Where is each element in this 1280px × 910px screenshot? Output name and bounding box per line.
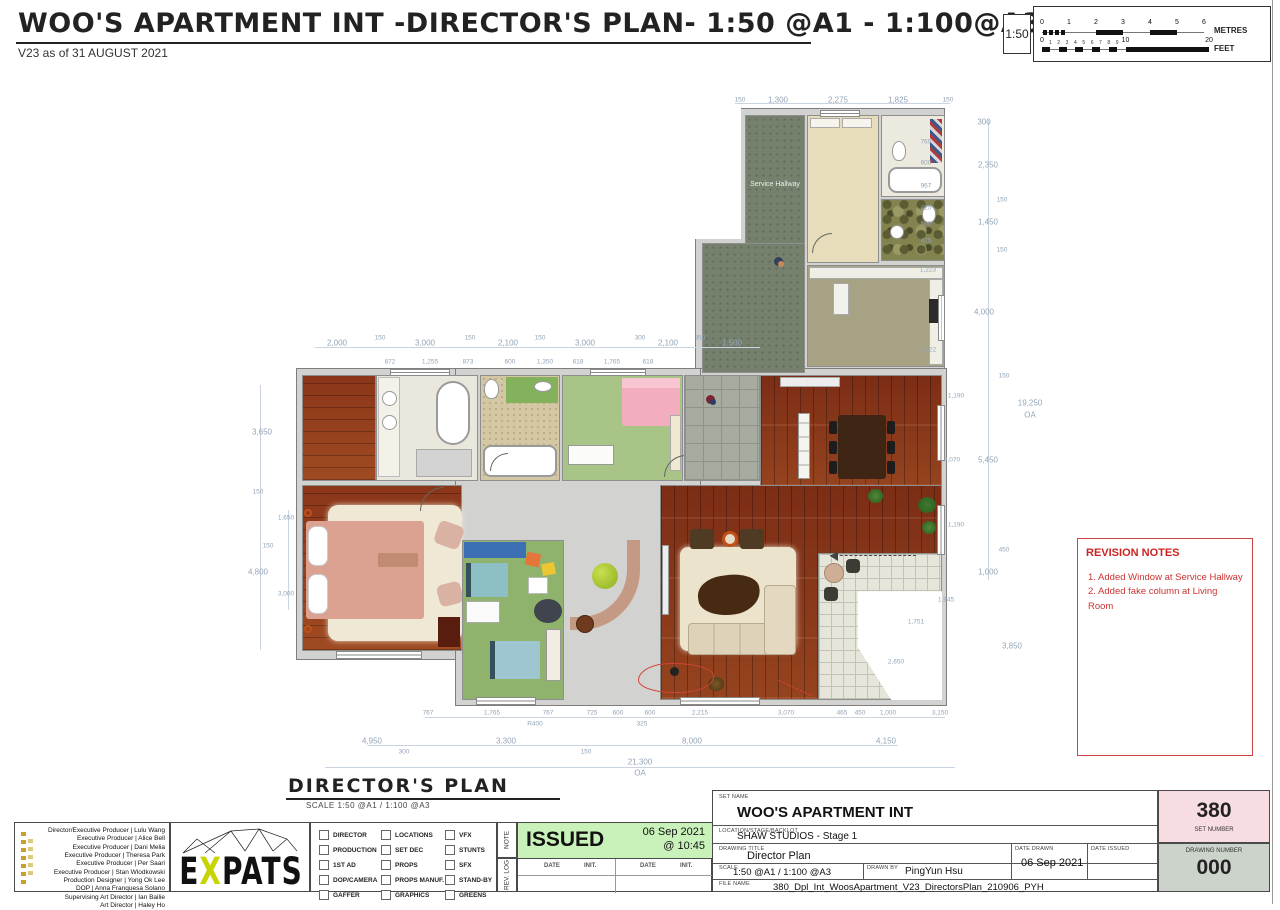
dim-label: 618 xyxy=(643,359,654,366)
department-item: LOCATIONS xyxy=(381,830,444,840)
department-checkbox xyxy=(445,890,455,900)
file-name-label: FILE NAME xyxy=(719,881,750,887)
dim-label: 1,000 xyxy=(978,568,998,577)
department-label: GREENS xyxy=(459,892,486,899)
department-label: GAFFER xyxy=(333,892,360,899)
drawing-number-value: 000 xyxy=(1159,856,1269,880)
dim-label: 425 xyxy=(921,238,932,245)
credit-line: Production Designer | Yong Ok Lee xyxy=(39,877,165,885)
dim-label: 1,945 xyxy=(938,597,954,604)
department-checkbox xyxy=(381,830,391,840)
dim-label: 150 xyxy=(253,489,264,496)
dim-label: 4,000 xyxy=(974,308,994,317)
set-number-label: SET NUMBER xyxy=(1159,827,1269,833)
department-item: PRODUCTION xyxy=(319,845,377,855)
department-label: PROPS xyxy=(395,862,418,869)
dim-label: 4,800 xyxy=(248,568,268,577)
credit-line: Executive Producer | Stan Wlodkowski xyxy=(39,869,165,877)
dim-label: 150 xyxy=(943,97,954,104)
dim-label: 450 xyxy=(855,710,866,717)
dim-label: 150 xyxy=(581,749,592,756)
dim-label: 873 xyxy=(463,359,474,366)
plan-caption-title: DIRECTOR'S PLAN xyxy=(288,775,509,797)
metre-tick: 0 xyxy=(1040,19,1044,26)
dim-label: 3,000 xyxy=(278,591,294,598)
revision-notes-title: REVISION NOTES xyxy=(1086,547,1252,559)
tb-divider xyxy=(1087,843,1088,879)
department-label: SET DEC xyxy=(395,847,423,854)
logo-letter: S xyxy=(282,849,303,894)
dim-label: 2,350 xyxy=(978,161,998,170)
departments-box: DIRECTORPRODUCTION1ST ADDOP/CAMERAGAFFER… xyxy=(310,822,497,892)
dim-label: 600 xyxy=(645,710,656,717)
log-init-header: INIT. xyxy=(680,863,692,869)
dim-label: 19,250 xyxy=(1018,399,1042,408)
issued-date: 06 Sep 2021 xyxy=(643,826,705,840)
feet-bar xyxy=(1059,47,1067,52)
logo-letter: T xyxy=(261,849,281,894)
scale-ratio-box: 1:50 xyxy=(1003,14,1031,54)
dim-label: 767 xyxy=(423,710,434,717)
department-checkbox xyxy=(319,830,329,840)
credits-box: Director/Executive Producer | Lulu WangE… xyxy=(14,822,170,892)
feet-bar-long xyxy=(1126,47,1209,52)
feet-minor-tick: 9 xyxy=(1116,40,1119,46)
dim-label: 1,300 xyxy=(768,96,788,105)
feet-tick: 0 xyxy=(1040,37,1044,44)
department-checkbox xyxy=(381,845,391,855)
metre-tick: 1 xyxy=(1067,19,1071,26)
dim-label: 3,000 xyxy=(575,339,595,348)
drawing-number-box: DRAWING NUMBER 000 xyxy=(1158,843,1270,892)
dim-label: 150 xyxy=(465,335,476,342)
credit-line: Executive Producer | Dani Melia xyxy=(39,844,165,852)
department-item: GRAPHICS xyxy=(381,890,444,900)
metre-bar xyxy=(1096,30,1123,35)
note-side-label: NOTE xyxy=(498,823,516,857)
title-block: SET NAME WOO'S APARTMENT INT LOCATION/ST… xyxy=(712,790,1158,892)
dim-label: 1,000 xyxy=(880,710,896,717)
dim-label: 600 xyxy=(613,710,624,717)
plan-caption-scale: SCALE 1:50 @A1 / 1:100 @A3 xyxy=(306,801,430,810)
sheet-title: WOO'S APARTMENT INT -DIRECTOR'S PLAN- 1:… xyxy=(18,8,1042,39)
dim-label: 2,100 xyxy=(658,339,678,348)
department-label: LOCATIONS xyxy=(395,832,433,839)
credit-line: Supervising Art Director | Ian Bailie xyxy=(39,894,165,902)
issued-datetime: 06 Sep 2021 @ 10:45 xyxy=(643,826,705,854)
department-label: GRAPHICS xyxy=(395,892,429,899)
department-label: DIRECTOR xyxy=(333,832,367,839)
feet-minor-tick: 7 xyxy=(1099,40,1102,46)
dim-label: 150 xyxy=(997,197,1008,204)
dim-label: 300 xyxy=(635,335,646,342)
credit-line: Executive Producer | Per Saari xyxy=(39,860,165,868)
dim-label: 150 xyxy=(263,543,274,550)
dim-label: 2,000 xyxy=(327,339,347,348)
revision-notes-list: 1. Added Window at Service Hallway2. Add… xyxy=(1088,571,1244,614)
set-number-value: 380 xyxy=(1159,799,1269,823)
feet-bar xyxy=(1109,47,1117,52)
department-checkbox xyxy=(445,860,455,870)
department-label: PROPS MANUF. xyxy=(395,877,444,884)
metre-tick: 5 xyxy=(1175,19,1179,26)
department-checkbox xyxy=(381,860,391,870)
department-label: VFX xyxy=(459,832,472,839)
department-checkbox xyxy=(445,845,455,855)
metre-tick: 2 xyxy=(1094,19,1098,26)
dimension-labels: 1501,3002,2751,8251502,0001503,0001502,1… xyxy=(240,85,1070,780)
issued-status: ISSUED xyxy=(526,828,604,852)
dim-label: 600 xyxy=(505,359,516,366)
set-name-label: SET NAME xyxy=(719,794,749,800)
dim-label: R400 xyxy=(527,721,543,728)
feet-minor-tick: 1 xyxy=(1049,40,1052,46)
department-item: 1ST AD xyxy=(319,860,377,870)
department-item: PROPS MANUF. xyxy=(381,875,444,885)
dim-label: 1,650 xyxy=(278,515,294,522)
dim-label: 3,070 xyxy=(944,457,960,464)
department-item: STUNTS xyxy=(445,845,492,855)
date-issued-label: DATE ISSUED xyxy=(1091,846,1129,852)
department-label: PRODUCTION xyxy=(333,847,377,854)
title-underline xyxy=(16,42,811,44)
dim-label: 3,000 xyxy=(415,339,435,348)
dim-label: 1,450 xyxy=(978,218,998,227)
dim-label: OA xyxy=(1024,411,1036,420)
dim-label: OA xyxy=(634,769,646,778)
dim-label: 1,500 xyxy=(722,339,742,348)
departments-column: VFXSTUNTSSFXSTAND-BYGREENS xyxy=(445,830,492,905)
floor-plan: Service Hallway xyxy=(240,85,1070,780)
logo-box: EXPATS xyxy=(170,822,310,892)
location-value: SHAW STUDIOS - Stage 1 xyxy=(737,831,857,842)
date-drawn-value: 06 Sep 2021 xyxy=(1021,857,1083,869)
departments-column: LOCATIONSSET DECPROPSPROPS MANUF.GRAPHIC… xyxy=(381,830,444,905)
feet-bar xyxy=(1042,47,1050,52)
feet-tick: 10 xyxy=(1122,37,1130,44)
department-checkbox xyxy=(319,845,329,855)
metre-dash xyxy=(1043,30,1047,35)
revlog-side-label: REV. LOG xyxy=(498,859,516,891)
feet-minor-tick: 4 xyxy=(1074,40,1077,46)
dim-label: 3,150 xyxy=(932,710,948,717)
sheet-edge-line xyxy=(1272,0,1273,904)
logo-expats: EXPATS xyxy=(171,849,311,894)
credits-list: Director/Executive Producer | Lulu WangE… xyxy=(39,827,165,910)
feet-minor-tick: 5 xyxy=(1082,40,1085,46)
feet-tick: 20 xyxy=(1205,37,1213,44)
metres-label: METRES xyxy=(1214,26,1247,35)
note-side-cell: NOTE xyxy=(497,822,517,858)
dim-label: 1,350 xyxy=(537,359,553,366)
department-label: STAND-BY xyxy=(459,877,492,884)
metre-tick: 4 xyxy=(1148,19,1152,26)
dim-label: 150 xyxy=(735,97,746,104)
dim-label: 350 xyxy=(695,335,706,342)
gold-square-column xyxy=(21,828,26,884)
dim-label: 1,190 xyxy=(948,393,964,400)
dim-label: 2,100 xyxy=(498,339,518,348)
log-date-header: DATE xyxy=(544,863,560,869)
drawing-title-value: Director Plan xyxy=(747,850,811,862)
sheet-version: V23 as of 31 AUGUST 2021 xyxy=(18,46,168,60)
revision-notes-box: REVISION NOTES 1. Added Window at Servic… xyxy=(1077,538,1253,756)
dim-label: 425 xyxy=(921,205,932,212)
drawing-sheet: { "colors":{"revision_red":"#cc3333","is… xyxy=(0,0,1280,904)
department-item: GAFFER xyxy=(319,890,377,900)
feet-minor-tick: 3 xyxy=(1066,40,1069,46)
revision-note-item: 1. Added Window at Service Hallway xyxy=(1088,571,1244,585)
set-number-box: 380 SET NUMBER xyxy=(1158,790,1270,843)
metre-tick: 6 xyxy=(1202,19,1206,26)
dim-label: 1,765 xyxy=(484,710,500,717)
dim-label: 450 xyxy=(999,547,1010,554)
department-item: STAND-BY xyxy=(445,875,492,885)
department-checkbox xyxy=(445,830,455,840)
dim-label: 465 xyxy=(837,710,848,717)
dim-label: 1,223 xyxy=(920,267,936,274)
revlog-side-cell: REV. LOG xyxy=(497,858,517,892)
dim-label: 8,000 xyxy=(682,737,702,746)
logo-letter: A xyxy=(241,849,262,894)
dim-label: 2,215 xyxy=(692,710,708,717)
credit-line: Art Director | Haley Ho xyxy=(39,902,165,910)
log-divider xyxy=(615,859,616,893)
department-item: DIRECTOR xyxy=(319,830,377,840)
issue-box: ISSUED 06 Sep 2021 @ 10:45 DATE INIT. DA… xyxy=(517,822,712,892)
dim-label: 3,850 xyxy=(1002,642,1022,651)
dim-label: 1,255 xyxy=(422,359,438,366)
dim-label: 600 xyxy=(921,221,932,228)
credit-line: Executive Producer | Theresa Park xyxy=(39,852,165,860)
dim-label: 3,300 xyxy=(496,737,516,746)
metre-dash xyxy=(1049,30,1053,35)
dim-label: 4,150 xyxy=(876,737,896,746)
metre-tick: 3 xyxy=(1121,19,1125,26)
department-item: GREENS xyxy=(445,890,492,900)
drawing-number-label: DRAWING NUMBER xyxy=(1159,848,1269,854)
dim-label: 1,765 xyxy=(604,359,620,366)
department-checkbox xyxy=(381,875,391,885)
credit-line: DOP | Anna Franquesa Solano xyxy=(39,885,165,893)
tb-line xyxy=(713,843,1159,844)
dim-label: 300 xyxy=(977,118,990,127)
dim-label: 2,275 xyxy=(828,96,848,105)
dim-label: 760 xyxy=(921,139,932,146)
dim-label: 3,650 xyxy=(252,428,272,437)
dim-label: 150 xyxy=(999,373,1010,380)
dim-label: 150 xyxy=(375,335,386,342)
department-label: SFX xyxy=(459,862,472,869)
dim-label: 4,950 xyxy=(362,737,382,746)
set-name-value: WOO'S APARTMENT INT xyxy=(737,804,913,821)
department-item: PROPS xyxy=(381,860,444,870)
dim-label: 5,450 xyxy=(978,456,998,465)
caption-underline xyxy=(286,798,560,800)
department-item: DOP/CAMERA xyxy=(319,875,377,885)
metres-baseline xyxy=(1042,32,1204,33)
feet-bar xyxy=(1092,47,1100,52)
dim-label: 600 xyxy=(921,160,932,167)
issued-banner: ISSUED 06 Sep 2021 @ 10:45 xyxy=(518,823,713,859)
credit-line: Executive Producer | Alice Bell xyxy=(39,835,165,843)
gold-square-column xyxy=(28,835,33,875)
department-item: SFX xyxy=(445,860,492,870)
dim-label: 2,650 xyxy=(888,659,904,666)
metre-dash xyxy=(1055,30,1059,35)
log-init-header: INIT. xyxy=(584,863,596,869)
department-checkbox xyxy=(319,875,329,885)
dim-label: 3,070 xyxy=(778,710,794,717)
credit-line: Director/Executive Producer | Lulu Wang xyxy=(39,827,165,835)
logo-letter: X xyxy=(199,849,222,894)
department-label: STUNTS xyxy=(459,847,485,854)
revision-note-item: 2. Added fake column at Living Room xyxy=(1088,585,1244,614)
feet-minor-tick: 6 xyxy=(1091,40,1094,46)
dim-label: 150 xyxy=(997,247,1008,254)
dim-label: 872 xyxy=(385,359,396,366)
department-checkbox xyxy=(445,875,455,885)
department-label: DOP/CAMERA xyxy=(333,877,377,884)
department-item: VFX xyxy=(445,830,492,840)
department-label: 1ST AD xyxy=(333,862,356,869)
departments-column: DIRECTORPRODUCTION1ST ADDOP/CAMERAGAFFER xyxy=(319,830,377,905)
feet-minor-tick: 2 xyxy=(1057,40,1060,46)
drawn-by-label: DRAWN BY xyxy=(867,865,898,871)
feet-label: FEET xyxy=(1214,44,1234,53)
dim-label: 1,751 xyxy=(908,619,924,626)
dim-label: 1,825 xyxy=(888,96,908,105)
dim-label: 325 xyxy=(637,721,648,728)
dim-label: 618 xyxy=(573,359,584,366)
department-checkbox xyxy=(319,860,329,870)
issued-time: @ 10:45 xyxy=(643,840,705,854)
department-item: SET DEC xyxy=(381,845,444,855)
tb-line xyxy=(713,825,1159,826)
dim-label: 1,522 xyxy=(920,347,936,354)
metre-dash xyxy=(1061,30,1065,35)
metre-bar xyxy=(1150,30,1177,35)
dim-label: 967 xyxy=(921,183,932,190)
tb-line xyxy=(713,879,1159,880)
drawn-by-value: PingYun Hsu xyxy=(905,866,963,877)
scale-bar: 0123456 METRES 01020123456789 FEET xyxy=(1033,6,1271,62)
feet-minor-tick: 8 xyxy=(1107,40,1110,46)
dim-label: 725 xyxy=(587,710,598,717)
dim-label: 300 xyxy=(399,749,410,756)
scale-value: 1:50 @A1 / 1:100 @A3 xyxy=(733,867,831,878)
dim-label: 1,190 xyxy=(948,522,964,529)
tb-divider xyxy=(1011,843,1012,879)
feet-bar xyxy=(1075,47,1083,52)
date-drawn-label: DATE DRAWN xyxy=(1015,846,1053,852)
department-checkbox xyxy=(319,890,329,900)
logo-letter: E xyxy=(179,849,199,894)
tb-line xyxy=(713,863,1159,864)
department-checkbox xyxy=(381,890,391,900)
tb-divider xyxy=(863,863,864,879)
dim-label: 21,300 xyxy=(628,758,652,767)
file-name-value: 380_Dpl_Int_WoosApartment_V23_DirectorsP… xyxy=(773,882,1044,893)
dim-label: 150 xyxy=(535,335,546,342)
logo-letter: P xyxy=(222,849,241,894)
log-date-header: DATE xyxy=(640,863,656,869)
dim-label: 767 xyxy=(543,710,554,717)
